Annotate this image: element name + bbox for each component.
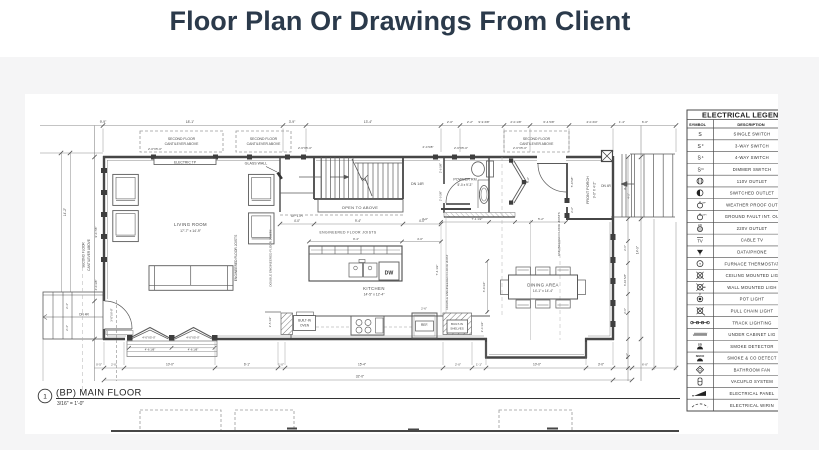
svg-text:4-WAY SWITCH: 4-WAY SWITCH [735,155,769,160]
svg-text:3'-0"X6'-8": 3'-0"X6'-8" [110,308,114,321]
svg-text:3'-0": 3'-0" [598,363,604,367]
svg-text:2'-2": 2'-2" [570,207,574,213]
svg-text:9'-9": 9'-9" [100,120,107,124]
svg-text:1'-0": 1'-0" [278,363,284,367]
svg-text:GFI: GFI [703,214,707,216]
svg-text:CANTILEVER ABOVE: CANTILEVER ABOVE [247,142,281,146]
svg-text:13'-4": 13'-4" [364,120,373,124]
svg-text:3'-9": 3'-9" [289,120,296,124]
svg-text:(BP) MAIN FLOOR: (BP) MAIN FLOOR [56,387,142,398]
svg-text:7'-4 1/2": 7'-4 1/2" [435,265,439,276]
svg-text:REF.: REF. [421,323,428,327]
svg-text:UP 17R: UP 17R [291,214,303,218]
svg-text:VACUFLO SYSTEM: VACUFLO SYSTEM [731,379,773,384]
svg-text:2'-6"X5'-0": 2'-6"X5'-0" [298,146,312,150]
svg-text:PULL CHAIN LIGHT: PULL CHAIN LIGHT [731,308,774,313]
svg-text:2'-0": 2'-0" [447,120,453,124]
svg-text:4'-2": 4'-2" [627,193,631,199]
svg-text:ELECTRICAL WIRIN: ELECTRICAL WIRIN [730,403,774,408]
svg-text:4'-0"X5'-0": 4'-0"X5'-0" [142,336,155,340]
svg-text:SECOND FLOOR: SECOND FLOOR [523,137,551,141]
svg-text:SHELVES: SHELVES [450,327,464,331]
svg-text:2'-6": 2'-6" [421,307,427,311]
svg-text:BUILT-IN: BUILT-IN [451,322,463,326]
svg-text:1'-4": 1'-4" [619,120,625,124]
svg-text:BATHROOM FAN: BATHROOM FAN [734,367,771,372]
svg-text:5'-2": 5'-2" [526,177,530,183]
svg-text:BUILT-IN: BUILT-IN [298,319,312,323]
svg-text:SWITCHED OUTLET: SWITCHED OUTLET [730,191,775,196]
svg-text:WEATHER PROOF OUT: WEATHER PROOF OUT [726,202,778,207]
svg-text:DATA/PHONE: DATA/PHONE [737,250,767,255]
svg-text:TRACK LIGHTING: TRACK LIGHTING [732,320,771,325]
svg-text:SMOKE DETECTOR: SMOKE DETECTOR [730,344,773,349]
svg-text:2'-0 5/8": 2'-0 5/8" [423,145,434,149]
svg-text:LIVING ROOM: LIVING ROOM [174,222,207,227]
svg-text:GLASS WALL: GLASS WALL [245,162,268,166]
svg-text:6'-10 5/8": 6'-10 5/8" [623,274,627,286]
svg-text:220: 220 [698,224,703,227]
svg-text:CANTILEVER ABOVE: CANTILEVER ABOVE [87,239,91,271]
svg-text:SYMBOL: SYMBOL [689,122,707,127]
svg-text:9'-9 3/8": 9'-9 3/8" [478,120,489,124]
svg-text:6'-4 5/8": 6'-4 5/8" [543,120,554,124]
svg-text:4'-6 1/8": 4'-6 1/8" [188,348,199,352]
svg-text:UNDER CABINET LIG: UNDER CABINET LIG [728,332,775,337]
svg-text:9'-4": 9'-4" [353,237,359,241]
svg-text:TV: TV [697,238,703,243]
svg-text:DW: DW [385,271,394,277]
svg-text:4'-0 3/8": 4'-0 3/8" [94,280,98,291]
svg-text:9'-0 7/8": 9'-0 7/8" [94,227,98,238]
svg-text:6'-1": 6'-1" [244,363,250,367]
svg-text:2'-0 1/8": 2'-0 1/8" [510,120,521,124]
svg-text:ELECTRIC TP: ELECTRIC TP [174,160,197,164]
svg-text:POT LIGHT: POT LIGHT [740,297,765,302]
svg-text:DIMMER SWITCH: DIMMER SWITCH [733,167,772,172]
svg-text:ENGINEERED FLOOR JOISTS: ENGINEERED FLOOR JOISTS [319,231,376,235]
svg-text:DOUBLE ENGINEERED FLOOR JOISTS: DOUBLE ENGINEERED FLOOR JOISTS [269,229,273,286]
svg-text:2'-0 5/8": 2'-0 5/8" [439,191,443,201]
svg-text:110V OUTLET: 110V OUTLET [737,179,768,184]
svg-text:4'-0 3/4": 4'-0 3/4" [586,120,597,124]
svg-text:4'-0"X5'-0": 4'-0"X5'-0" [186,336,199,340]
svg-text:1'-1": 1'-1" [476,363,482,367]
svg-text:10'-0": 10'-0" [533,363,541,367]
svg-text:DN 4R: DN 4R [79,313,89,317]
svg-text:3-WAY SWITCH: 3-WAY SWITCH [735,143,769,148]
svg-text:2'-4 1/2": 2'-4 1/2" [480,322,484,333]
svg-text:17'-7" x 14'-9": 17'-7" x 14'-9" [180,229,202,233]
svg-text:CABLE TV: CABLE TV [741,238,764,243]
svg-text:KITCHEN: KITCHEN [363,286,385,291]
svg-text:ENGINEERED FLOOR JOISTS: ENGINEERED FLOOR JOISTS [557,212,561,256]
svg-text:T: T [699,262,701,266]
svg-text:POWDER RM: POWDER RM [453,178,476,182]
svg-text:2'-4": 2'-4" [65,303,69,309]
svg-text:7'-1 1/2": 7'-1 1/2" [472,217,483,221]
svg-text:SECOND FLOOR: SECOND FLOOR [82,242,86,268]
svg-text:DN 14R: DN 14R [411,182,424,186]
svg-text:FRONT PORCH: FRONT PORCH [586,176,590,204]
svg-text:2'-6": 2'-6" [623,308,627,314]
svg-text:2'-6": 2'-6" [623,245,627,251]
svg-text:SECOND FLOOR: SECOND FLOOR [168,137,196,141]
svg-text:WP: WP [702,203,706,205]
svg-text:SINGLE SWITCH: SINGLE SWITCH [734,132,771,137]
svg-text:SD/CO: SD/CO [696,354,705,358]
svg-text:220V OUTLET: 220V OUTLET [737,226,768,231]
svg-text:2'-6"X5'-0": 2'-6"X5'-0" [454,146,468,150]
svg-text:WALL MOUNTED LIGH: WALL MOUNTED LIGH [727,285,776,290]
svg-text:2'-0"X5'-0": 2'-0"X5'-0" [148,147,162,151]
svg-text:14'-2": 14'-2" [63,207,67,216]
svg-text:GROUND FAULT INT. OU: GROUND FAULT INT. OU [725,214,779,219]
svg-text:DESCRIPTION: DESCRIPTION [737,122,764,127]
svg-text:4'-0": 4'-0" [417,237,423,241]
svg-text:18'-1": 18'-1" [186,120,195,124]
svg-text:0'-5": 0'-5" [96,363,102,367]
svg-text:FURNACE THERMOSTAT: FURNACE THERMOSTAT [725,261,780,266]
svg-text:DINING AREA: DINING AREA [527,283,559,288]
svg-text:14'-5" x 12'-4": 14'-5" x 12'-4" [364,293,386,297]
svg-text:2'-4": 2'-4" [65,325,69,331]
svg-text:SMOKE & CO DETECT: SMOKE & CO DETECT [727,356,777,361]
svg-text:10'-0": 10'-0" [166,363,174,367]
svg-text:SECOND FLOOR: SECOND FLOOR [250,137,278,141]
svg-text:CANTILEVER ABOVE: CANTILEVER ABOVE [165,142,199,146]
svg-text:5'-2": 5'-2" [538,217,544,221]
svg-text:6'-0": 6'-0" [642,120,648,124]
svg-text:9'-4": 9'-4" [355,219,361,223]
svg-text:DN 4R: DN 4R [601,184,611,188]
svg-text:14'-9": 14'-9" [636,246,640,254]
svg-text:DOUBLE ENGINEERED FLOOR JOIST: DOUBLE ENGINEERED FLOOR JOIST [445,254,449,309]
svg-text:6'-0 3/4": 6'-0 3/4" [482,282,486,293]
svg-text:CEILING MOUNTED LIG: CEILING MOUNTED LIG [726,273,779,278]
svg-text:2'-0": 2'-0" [111,363,117,367]
svg-text:2'-0": 2'-0" [455,363,461,367]
svg-text:2'-6"X5'-0": 2'-6"X5'-0" [513,146,527,150]
svg-text:2'-5 1/2": 2'-5 1/2" [268,317,272,328]
svg-text:2'-2": 2'-2" [467,120,473,124]
svg-text:3/16" = 1'-0": 3/16" = 1'-0" [57,401,84,407]
svg-text:4'-6 1/8": 4'-6 1/8" [145,348,156,352]
svg-text:ELECTRICAL LEGEND: ELECTRICAL LEGEND [702,111,784,120]
svg-text:1: 1 [43,394,47,401]
svg-text:5'-0 5/8": 5'-0 5/8" [570,177,574,188]
svg-text:32'-0": 32'-0" [356,375,365,379]
svg-text:4'-0": 4'-0" [294,219,300,223]
svg-text:5'-0 x 9'-3": 5'-0 x 9'-3" [458,183,473,187]
svg-text:ELECTRICAL PANEL: ELECTRICAL PANEL [729,391,774,396]
svg-text:2'-6 5/8": 2'-6 5/8" [439,163,443,173]
svg-text:OPEN TO ABOVE: OPEN TO ABOVE [342,205,378,210]
svg-text:9'-0" X 4'-2": 9'-0" X 4'-2" [593,182,597,199]
svg-text:2'-2": 2'-2" [625,353,629,359]
svg-text:14'-1" x 14'-4": 14'-1" x 14'-4" [533,289,554,293]
svg-text:3'-0": 3'-0" [422,217,428,221]
svg-text:15'-4": 15'-4" [358,363,366,367]
svg-text:6'-0": 6'-0" [642,363,648,367]
svg-text:OVEN: OVEN [300,324,310,328]
svg-text:ENGINEERED FLOOR JOISTS: ENGINEERED FLOOR JOISTS [234,234,238,281]
